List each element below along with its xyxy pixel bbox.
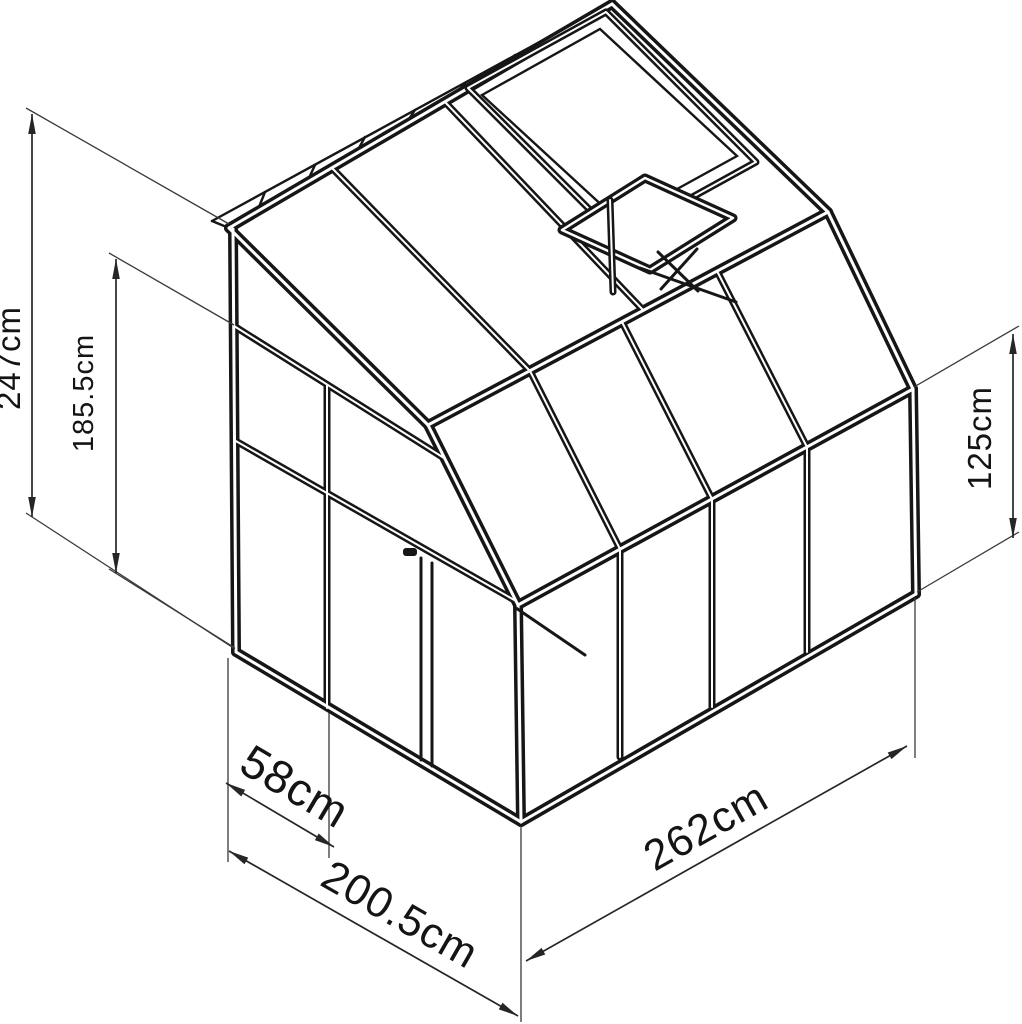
dimension-front-width: 262cm xyxy=(526,598,915,961)
rail-texture xyxy=(229,4,916,822)
frame-structure-core xyxy=(229,4,916,822)
frame-structure xyxy=(229,4,916,822)
dimension-side-depth: 200.5cm xyxy=(229,826,521,1022)
dim-label-front-panel-height: 125cm xyxy=(961,386,998,490)
greenhouse-isometric-diagram: 247cm 185.5cm 125cm 58cm 200.5cm 262cm xyxy=(0,0,1022,1024)
dimension-wall-height: 185.5cm xyxy=(68,253,235,648)
dim-label-total-height: 247cm xyxy=(0,306,27,410)
dim-label-front-width: 262cm xyxy=(636,773,776,881)
roof-vent xyxy=(468,12,756,302)
dim-label-wall-height: 185.5cm xyxy=(68,334,100,452)
dimension-front-panel-height: 125cm xyxy=(914,326,1019,592)
sliding-door xyxy=(403,548,432,766)
dimension-total-height: 247cm xyxy=(0,108,235,649)
door-handle xyxy=(403,548,417,556)
corner-brace xyxy=(516,608,585,655)
dim-label-door-width: 58cm xyxy=(232,734,359,838)
drawing-canvas: 247cm 185.5cm 125cm 58cm 200.5cm 262cm xyxy=(0,0,1022,1024)
